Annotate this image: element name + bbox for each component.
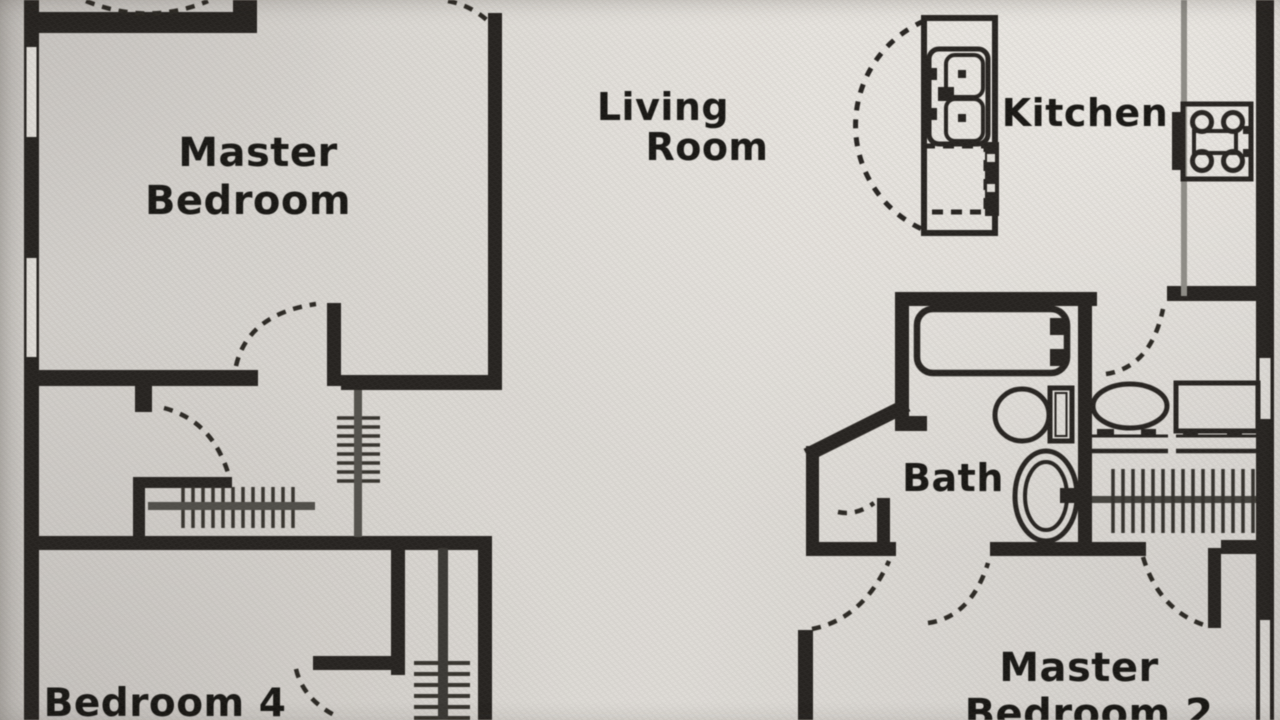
range-cooktop-icon xyxy=(1172,104,1251,179)
master-bottom-wall-right xyxy=(341,375,502,390)
window-icon xyxy=(27,47,37,137)
window-edge xyxy=(1256,620,1260,720)
label-bedroom4: Bedroom 4 xyxy=(44,681,287,720)
bath-top-wall-right xyxy=(1167,286,1256,301)
door-arc-icon xyxy=(164,408,229,476)
closet-wall xyxy=(39,12,257,33)
stair-rail-mid xyxy=(354,390,362,537)
floor-plan-photo: Master Bedroom Living Room Kitchen Bath … xyxy=(0,0,1280,720)
door-arc-icon xyxy=(86,1,208,14)
hall-left-wall xyxy=(806,446,819,556)
mbr2-top-wall-left xyxy=(806,542,896,556)
door-arc-icon xyxy=(236,304,316,366)
door-arc-icon xyxy=(928,563,988,623)
bath-entry-jog xyxy=(895,416,927,431)
door-arc-icon xyxy=(838,503,874,513)
dishwasher-icon xyxy=(924,146,986,212)
bedroom4-right-wall xyxy=(478,548,492,720)
label-bath: Bath xyxy=(902,456,1004,500)
door-arc-icon xyxy=(812,561,889,629)
angled-wall xyxy=(813,408,901,452)
window-edge xyxy=(1270,620,1274,720)
room-labels: Master Bedroom Living Room Kitchen Bath … xyxy=(44,85,1214,720)
bedroom4-door-stub xyxy=(313,656,405,670)
closet-shelving-icon xyxy=(1113,469,1253,533)
door-arc-icon xyxy=(296,669,336,716)
label-master-bedroom2-line1: Master xyxy=(999,645,1159,691)
label-master-bedroom2-line2: Bedroom 2 xyxy=(965,691,1214,720)
kitchen-sink-icon xyxy=(929,49,988,144)
bathtub-icon xyxy=(917,309,1067,373)
mbr2-left-wall xyxy=(798,630,813,720)
master-bottom-wall-left xyxy=(24,370,258,386)
counter-notch xyxy=(987,154,995,162)
label-living-room-line1: Living xyxy=(597,85,729,129)
door-arc-icon xyxy=(1106,309,1163,374)
label-living-room-line2: Room xyxy=(645,125,768,169)
counter-end-block xyxy=(985,142,999,216)
mbr2-corner-wall-v xyxy=(1208,548,1221,628)
island-arc-counter xyxy=(856,21,924,230)
hall-closet-stub xyxy=(135,386,152,412)
second-vanity-icon xyxy=(1176,383,1258,431)
right-exterior-wall-upper xyxy=(1256,0,1274,358)
door-arc-icon xyxy=(1143,557,1207,626)
bath-vanity-divider-wall xyxy=(1078,292,1092,556)
label-kitchen: Kitchen xyxy=(1002,91,1169,135)
label-master-bedroom-line1: Master xyxy=(178,130,338,176)
mbr2-top-wall-mid xyxy=(990,542,1146,556)
kitchen-fixtures xyxy=(856,0,1251,296)
garden-tub-icon xyxy=(1015,451,1077,541)
door-arc-icon xyxy=(448,1,488,21)
window-icon xyxy=(27,258,37,357)
window-edge xyxy=(1271,358,1275,419)
living-room-left-wall xyxy=(488,13,502,390)
floor-plan-svg: Master Bedroom Living Room Kitchen Bath … xyxy=(0,0,1280,720)
stair-rail-upper xyxy=(148,502,315,510)
bath-top-wall-left xyxy=(895,292,1097,306)
stair-rail-lower xyxy=(438,548,448,720)
label-master-bedroom-line2: Bedroom xyxy=(145,178,351,224)
toilet-icon xyxy=(995,388,1072,441)
stair-l-wall-horizontal xyxy=(133,477,232,488)
master-entry-stub-wall xyxy=(327,303,341,386)
counter-notch xyxy=(987,184,995,192)
bedroom4-top-wall xyxy=(24,536,492,550)
vanity-sink-icon xyxy=(1093,384,1167,428)
right-exterior-wall-mid xyxy=(1256,419,1274,620)
